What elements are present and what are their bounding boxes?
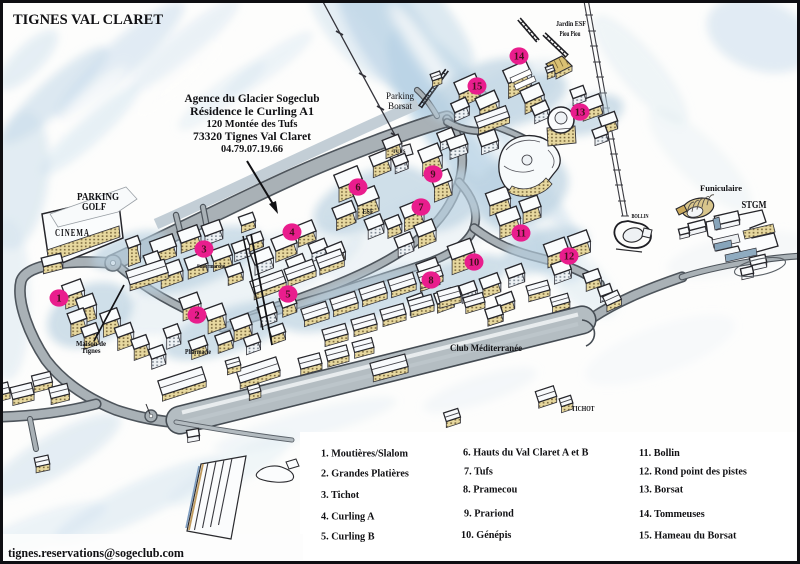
svg-text:04.79.07.19.66: 04.79.07.19.66	[221, 143, 283, 155]
svg-text:8. Pramecou: 8. Pramecou	[463, 485, 518, 496]
svg-text:TICHOT: TICHOT	[572, 405, 595, 413]
svg-text:4. Curling A: 4. Curling A	[321, 512, 375, 523]
svg-text:14: 14	[514, 52, 525, 63]
svg-text:CINEMA: CINEMA	[55, 228, 90, 239]
svg-text:Club Méditerranée: Club Méditerranée	[450, 343, 522, 353]
svg-text:TUFS: TUFS	[393, 149, 406, 155]
svg-text:73320 Tignes Val Claret: 73320 Tignes Val Claret	[193, 129, 311, 143]
svg-text:13. Borsat: 13. Borsat	[639, 485, 684, 496]
svg-text:5. Curling B: 5. Curling B	[321, 532, 375, 543]
svg-text:Parking: Parking	[386, 92, 414, 102]
svg-text:6: 6	[355, 183, 360, 194]
svg-text:Résidence le Curling A1: Résidence le Curling A1	[190, 104, 314, 118]
svg-text:3. Tichot: 3. Tichot	[321, 490, 360, 501]
svg-text:12: 12	[564, 252, 575, 263]
svg-text:13: 13	[575, 108, 586, 119]
svg-text:1. Moutières/Slalom: 1. Moutières/Slalom	[321, 449, 408, 460]
svg-text:Agence du Glacier Sogeclub: Agence du Glacier Sogeclub	[185, 91, 320, 105]
svg-text:12. Rond point des pistes: 12. Rond point des pistes	[639, 467, 747, 478]
svg-text:10. Génépis: 10. Génépis	[461, 530, 511, 541]
svg-text:10: 10	[469, 258, 480, 269]
svg-text:7: 7	[418, 203, 423, 214]
svg-text:1: 1	[56, 294, 61, 305]
svg-text:STGM: STGM	[742, 200, 767, 211]
svg-text:Tignes: Tignes	[82, 346, 101, 355]
svg-text:11: 11	[516, 229, 526, 240]
svg-text:9. Prariond: 9. Prariond	[464, 509, 514, 520]
svg-text:Borsat: Borsat	[388, 102, 412, 112]
svg-text:11. Bollin: 11. Bollin	[639, 448, 680, 459]
svg-text:7. Tufs: 7. Tufs	[464, 467, 493, 478]
svg-text:Funiculaire: Funiculaire	[700, 183, 742, 193]
svg-text:Jardin ESF: Jardin ESF	[556, 19, 586, 28]
svg-text:BOLLIN: BOLLIN	[632, 214, 649, 220]
svg-text:GOLF: GOLF	[82, 202, 106, 213]
svg-text:8: 8	[428, 276, 433, 287]
svg-text:4: 4	[289, 228, 295, 239]
svg-text:5: 5	[285, 290, 290, 301]
svg-text:Piou Piou: Piou Piou	[560, 29, 581, 38]
svg-text:6. Hauts du Val Claret A et B: 6. Hauts du Val Claret A et B	[463, 448, 589, 459]
svg-text:14. Tommeuses: 14. Tommeuses	[639, 509, 705, 520]
svg-text:2: 2	[194, 311, 199, 322]
svg-text:2. Grandes Platières: 2. Grandes Platières	[321, 469, 409, 480]
svg-text:tignes.reservations@sogeclub.c: tignes.reservations@sogeclub.com	[8, 546, 184, 560]
svg-text:3: 3	[201, 245, 206, 256]
svg-text:ESF: ESF	[363, 208, 374, 216]
svg-text:Pharmacie: Pharmacie	[185, 348, 211, 356]
svg-text:TIGNES VAL CLARET: TIGNES VAL CLARET	[13, 12, 163, 28]
svg-text:15: 15	[472, 82, 483, 93]
svg-text:9: 9	[430, 170, 435, 181]
svg-text:Supermarché: Supermarché	[197, 264, 225, 270]
svg-text:15. Hameau du Borsat: 15. Hameau du Borsat	[639, 531, 737, 542]
